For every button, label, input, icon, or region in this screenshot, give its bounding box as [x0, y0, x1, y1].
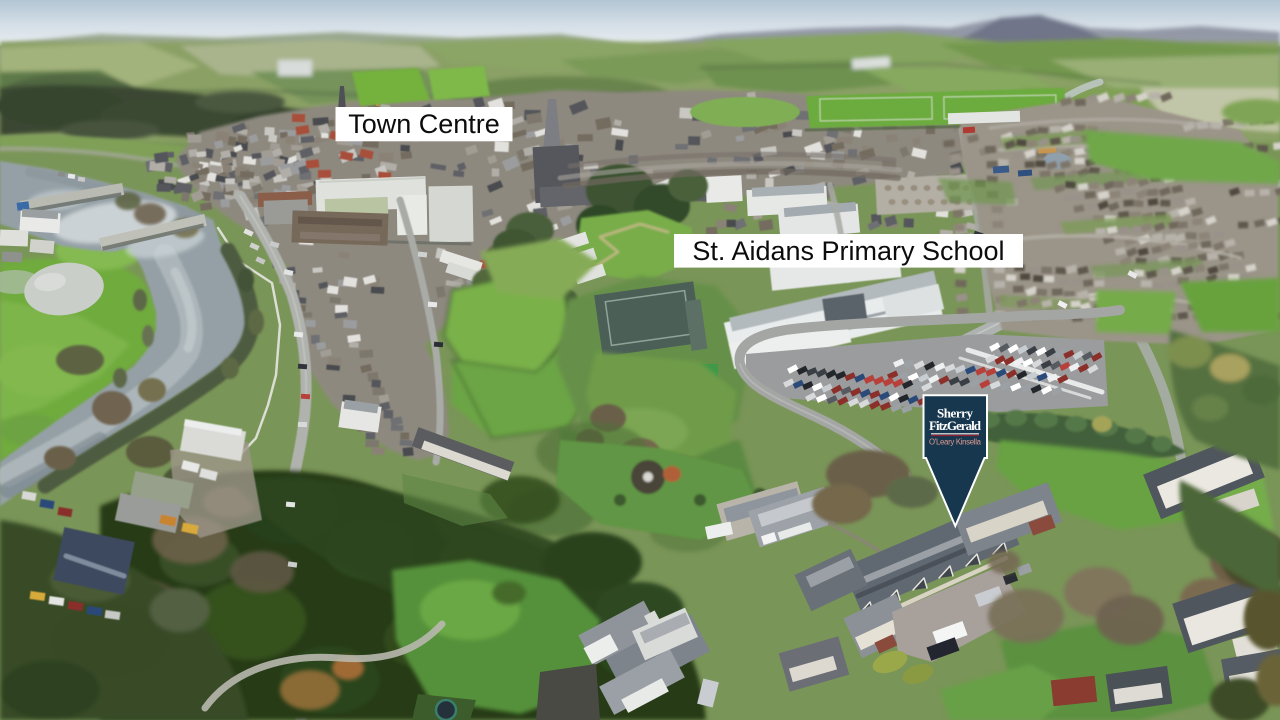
svg-text:St. Aidans Primary School: St. Aidans Primary School: [692, 236, 1004, 266]
svg-text:FitzGerald: FitzGerald: [929, 418, 982, 433]
svg-text:Town Centre: Town Centre: [348, 109, 500, 139]
svg-text:O'Leary Kinsella: O'Leary Kinsella: [929, 438, 982, 447]
